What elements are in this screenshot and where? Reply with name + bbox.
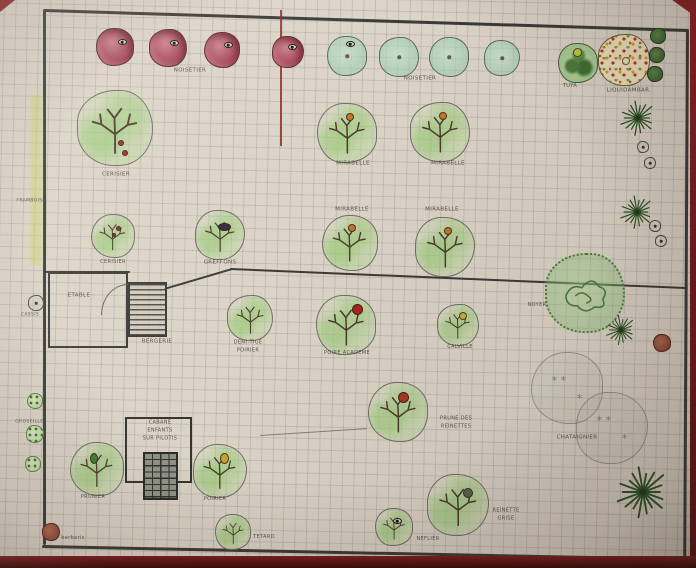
plant-demi-tige-poirier [227, 295, 273, 341]
plan-label: MIRABELLE [335, 206, 369, 215]
bud-eye-mark [118, 39, 127, 45]
fruit [116, 226, 121, 231]
bud-eye-mark [393, 518, 402, 524]
plant-buisson-1 [650, 28, 666, 44]
plan-label: NOISETIER [174, 67, 206, 76]
plan-label: NOYER [528, 302, 547, 310]
plan-label: GREFFONS [204, 259, 237, 268]
plant-mirabelle-2 [410, 102, 470, 162]
fruit [112, 233, 116, 237]
plan-label: NEFLIER [416, 536, 439, 544]
plant-noisetier-vert-4 [484, 40, 520, 76]
fruit [459, 312, 467, 320]
plan-label: DEMI-TIGEPOIRIER [234, 339, 263, 355]
plan-label: POIRIER [204, 496, 226, 504]
fruit [122, 150, 128, 156]
plant-noisetier-rouge-2 [149, 29, 187, 67]
plan-label: ETABLE [68, 292, 91, 301]
fruit [220, 453, 229, 464]
plant-petit-rond-1 [637, 141, 649, 153]
plant-yucca-3 [605, 314, 637, 346]
plan-label: MIRABELLE [336, 160, 370, 169]
plant-noisetier-vert-3 [429, 37, 469, 77]
plan-label: REINETTEGRISE [493, 507, 520, 523]
plant-poire-academe [316, 295, 376, 355]
plan-label: CALVILLE [447, 344, 473, 352]
bud-eye-mark [170, 40, 179, 46]
plant-poirier [193, 444, 247, 498]
plan-label: CABANEENFANTSSUR PILOTIS [143, 419, 177, 442]
fruit [573, 48, 582, 57]
plant-buisson-3 [647, 66, 663, 82]
plan-label: POIRE ACADEME [324, 350, 370, 358]
plant-petit-rond-3 [649, 220, 661, 232]
plan-label: LIQUIDAMBAR [607, 87, 650, 96]
plant-mirabelle-4 [415, 217, 475, 277]
plant-cerisier-1 [77, 90, 153, 166]
fruit [398, 392, 409, 403]
plant-prune-des-reinettes [368, 382, 428, 442]
plan-label: CASSIS [21, 313, 39, 320]
plant-buisson-rouge-droite [653, 334, 671, 352]
fruit [348, 224, 356, 232]
plan-label: CERISIER [102, 171, 130, 180]
plan-label: TETARD [253, 534, 275, 542]
plan-label: PRUNIER [81, 494, 105, 502]
plan-label: CERISIER [100, 259, 126, 267]
plant-groseille-1 [27, 393, 43, 409]
bud-eye-mark [288, 44, 297, 50]
plan-label: PRUNE DESREINETTES [440, 415, 472, 431]
plant-mirabelle-1 [317, 103, 377, 163]
plan-label: BERGERIE [142, 338, 173, 347]
plan-label: GROSEILLES [15, 420, 46, 427]
plan-label: berberis [61, 535, 84, 543]
plant-cassis [28, 295, 44, 311]
fruit [439, 112, 447, 120]
plan-label: FRAMBOISE [16, 199, 45, 206]
plant-noisetier-rouge-3 [204, 32, 240, 68]
plan-label: TUYA [563, 83, 577, 91]
plant-greffons [195, 210, 245, 260]
plant-noisetier-rouge-4 [272, 36, 304, 68]
fruit [90, 453, 98, 464]
mat-edge-right [690, 0, 696, 568]
plant-groseille-3 [25, 456, 41, 472]
plant-neflier [375, 508, 413, 546]
plant-prunier [70, 442, 124, 496]
plant-chataignier-2 [576, 392, 648, 464]
fruit [118, 140, 124, 146]
plant-yucca-1 [619, 99, 657, 137]
mat-edge-bottom [0, 556, 696, 568]
plan-label: CHATAIGNIER [557, 434, 598, 443]
bud-eye-mark [224, 42, 233, 48]
bud-eye-mark [346, 41, 355, 47]
fruit [352, 304, 363, 315]
plant-yucca-4 [615, 464, 671, 520]
plant-calville [437, 304, 479, 346]
plant-tetard [215, 514, 251, 550]
garden-plan-photo: NOISETIERNOISETIERTUYALIQUIDAMBARCERISIE… [0, 0, 696, 568]
plant-liquidambar [598, 34, 650, 86]
plant-petit-rond-2 [644, 157, 656, 169]
plan-label: NOISETIER [404, 75, 436, 84]
plant-reinette-grise [427, 474, 489, 536]
plant-groseille-2 [26, 425, 44, 443]
fruit [218, 223, 231, 231]
fruit [444, 227, 452, 235]
fruit [346, 113, 354, 121]
plan-label: MIRABELLE [431, 160, 465, 169]
plant-framboise-bande [28, 95, 44, 265]
plan-label: MIRABELLE [425, 206, 459, 215]
plant-petit-rond-4 [655, 235, 667, 247]
plant-buisson-2 [649, 47, 665, 63]
plant-berberis [42, 523, 60, 541]
fruit [463, 488, 473, 498]
plant-noisetier-vert-2 [379, 37, 419, 77]
plan-layer: NOISETIERNOISETIERTUYALIQUIDAMBARCERISIE… [0, 0, 696, 568]
plant-noisetier-rouge-1 [96, 28, 134, 66]
